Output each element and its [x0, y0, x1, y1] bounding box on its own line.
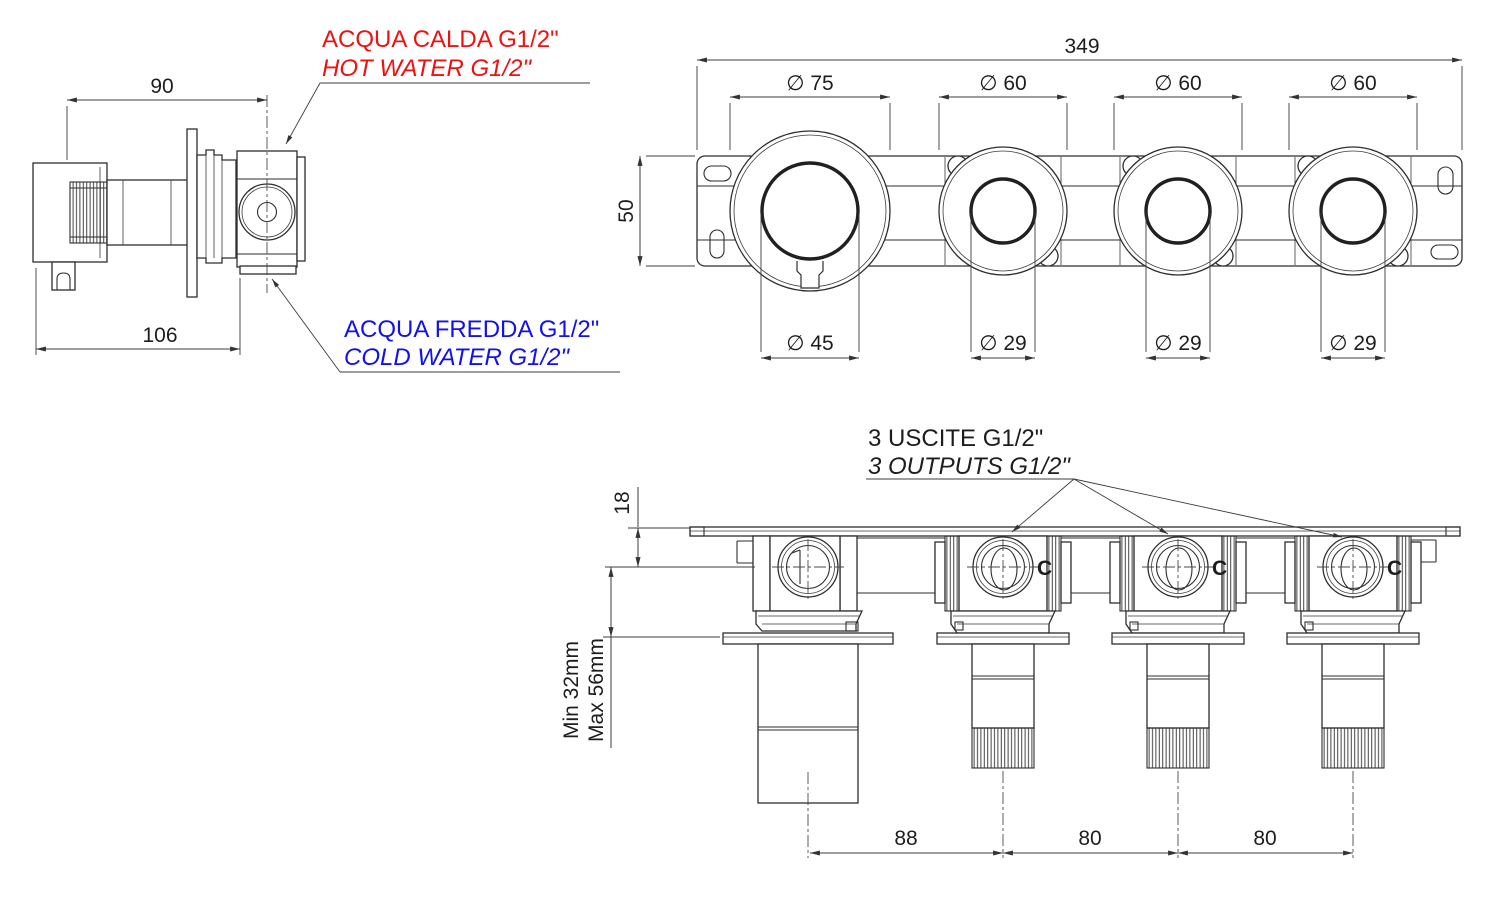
dim-d29-label-1: ∅ 29 — [979, 332, 1027, 355]
bottom-view-drawing: C C C 3 USCITE G1/2" 3 OUTPUTS G1/2" 18 … — [560, 425, 1460, 858]
dim-d75-label: ∅ 75 — [786, 72, 834, 95]
front-knob-4 — [1289, 147, 1417, 275]
hot-water-label-it: ACQUA CALDA G1/2" — [322, 26, 559, 53]
front-knob-1 — [730, 131, 890, 291]
bottom-valve-4 — [1285, 536, 1421, 858]
cold-water-callout: ACQUA FREDDA G1/2" COLD WATER G1/2" — [272, 279, 620, 372]
cold-port-letter-1: C — [1037, 557, 1052, 580]
cold-water-label-it: ACQUA FREDDA G1/2" — [344, 316, 599, 343]
outputs-label-en: 3 OUTPUTS G1/2" — [868, 453, 1071, 480]
front-knob-3 — [1114, 147, 1242, 275]
cold-water-label-en: COLD WATER G1/2" — [344, 344, 570, 371]
bottom-dim-depth: Min 32mm Max 56mm — [560, 567, 720, 748]
dim-min-depth-label: Min 32mm — [560, 641, 583, 739]
dim-d29-label-2: ∅ 29 — [1154, 332, 1202, 355]
dim-d60-label-3: ∅ 60 — [1329, 72, 1377, 95]
front-dim-50: 50 — [615, 156, 695, 266]
dim-80-label-2: 80 — [1253, 827, 1276, 850]
bottom-valve-2 — [935, 536, 1071, 858]
side-view-drawing: 90 106 ACQUA CALDA G1/2" HOT WATER G1/2"… — [33, 26, 620, 372]
dim-88-label: 88 — [894, 827, 917, 850]
dim-80-label-1: 80 — [1078, 827, 1101, 850]
front-view-drawing: 349 ∅ 75 ∅ 60 ∅ 60 ∅ 60 ∅ 45 ∅ 29 — [615, 35, 1462, 358]
bottom-valve-3 — [1110, 536, 1246, 858]
dim-50-label: 50 — [615, 199, 638, 222]
cold-port-letter-2: C — [1212, 557, 1227, 580]
side-dim-90: 90 — [67, 75, 267, 160]
dim-349-label: 349 — [1064, 35, 1099, 58]
dim-18-label: 18 — [611, 491, 634, 514]
dim-d45-label: ∅ 45 — [786, 332, 834, 355]
front-knob-2 — [939, 147, 1067, 275]
dim-d60-label-2: ∅ 60 — [1154, 72, 1202, 95]
dim-90-label: 90 — [150, 75, 173, 98]
valve-technical-drawing: 90 106 ACQUA CALDA G1/2" HOT WATER G1/2"… — [0, 0, 1500, 901]
dim-106-label: 106 — [142, 324, 177, 347]
outputs-callout: 3 USCITE G1/2" 3 OUTPUTS G1/2" — [866, 425, 1342, 537]
dim-d29-label-3: ∅ 29 — [1329, 332, 1377, 355]
bottom-valve-1 — [723, 536, 893, 858]
dim-max-depth-label: Max 56mm — [585, 638, 608, 742]
hot-water-label-en: HOT WATER G1/2" — [322, 55, 532, 82]
dim-d60-label-1: ∅ 60 — [979, 72, 1027, 95]
hot-water-callout: ACQUA CALDA G1/2" HOT WATER G1/2" — [286, 26, 590, 144]
technical-drawing-page: 90 106 ACQUA CALDA G1/2" HOT WATER G1/2"… — [0, 0, 1500, 901]
cold-port-letter-3: C — [1387, 557, 1402, 580]
outputs-label-it: 3 USCITE G1/2" — [868, 425, 1043, 452]
bottom-dims-spacing: 88 80 80 — [810, 827, 1353, 853]
